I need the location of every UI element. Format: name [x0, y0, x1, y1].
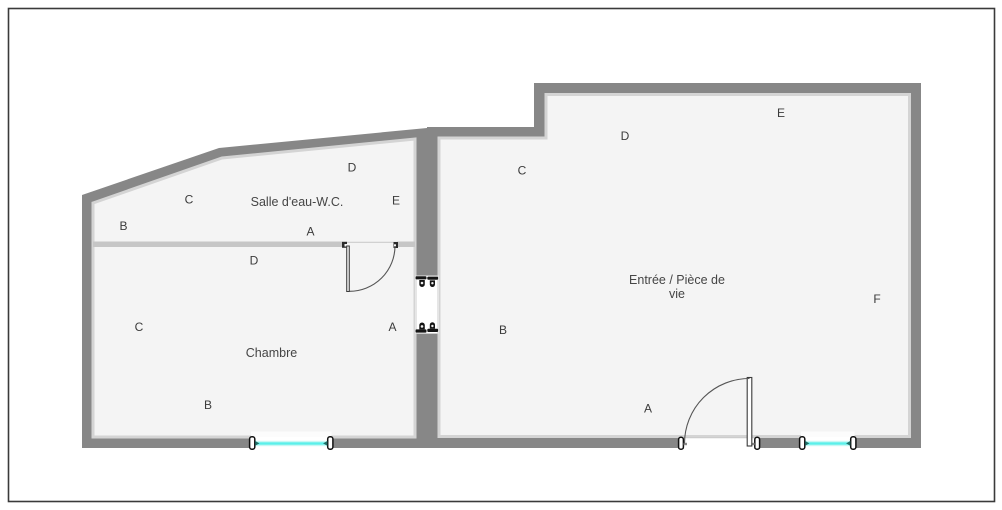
svg-text:Salle d'eau-W.C.: Salle d'eau-W.C.: [251, 195, 344, 209]
svg-text:E: E: [777, 106, 785, 120]
svg-text:B: B: [119, 219, 127, 233]
svg-text:B: B: [204, 398, 212, 412]
svg-text:vie: vie: [669, 287, 685, 301]
svg-text:D: D: [348, 161, 357, 175]
svg-text:A: A: [644, 402, 652, 416]
svg-text:C: C: [135, 320, 144, 334]
svg-text:C: C: [185, 193, 194, 207]
svg-text:C: C: [518, 164, 527, 178]
svg-text:A: A: [388, 320, 396, 334]
svg-text:Entrée / Pièce de: Entrée / Pièce de: [629, 273, 725, 287]
svg-text:F: F: [873, 292, 880, 306]
svg-text:D: D: [621, 129, 630, 143]
svg-text:Chambre: Chambre: [246, 346, 297, 360]
svg-text:E: E: [392, 194, 400, 208]
svg-text:D: D: [250, 254, 259, 268]
svg-text:A: A: [306, 225, 314, 239]
svg-text:B: B: [499, 323, 507, 337]
